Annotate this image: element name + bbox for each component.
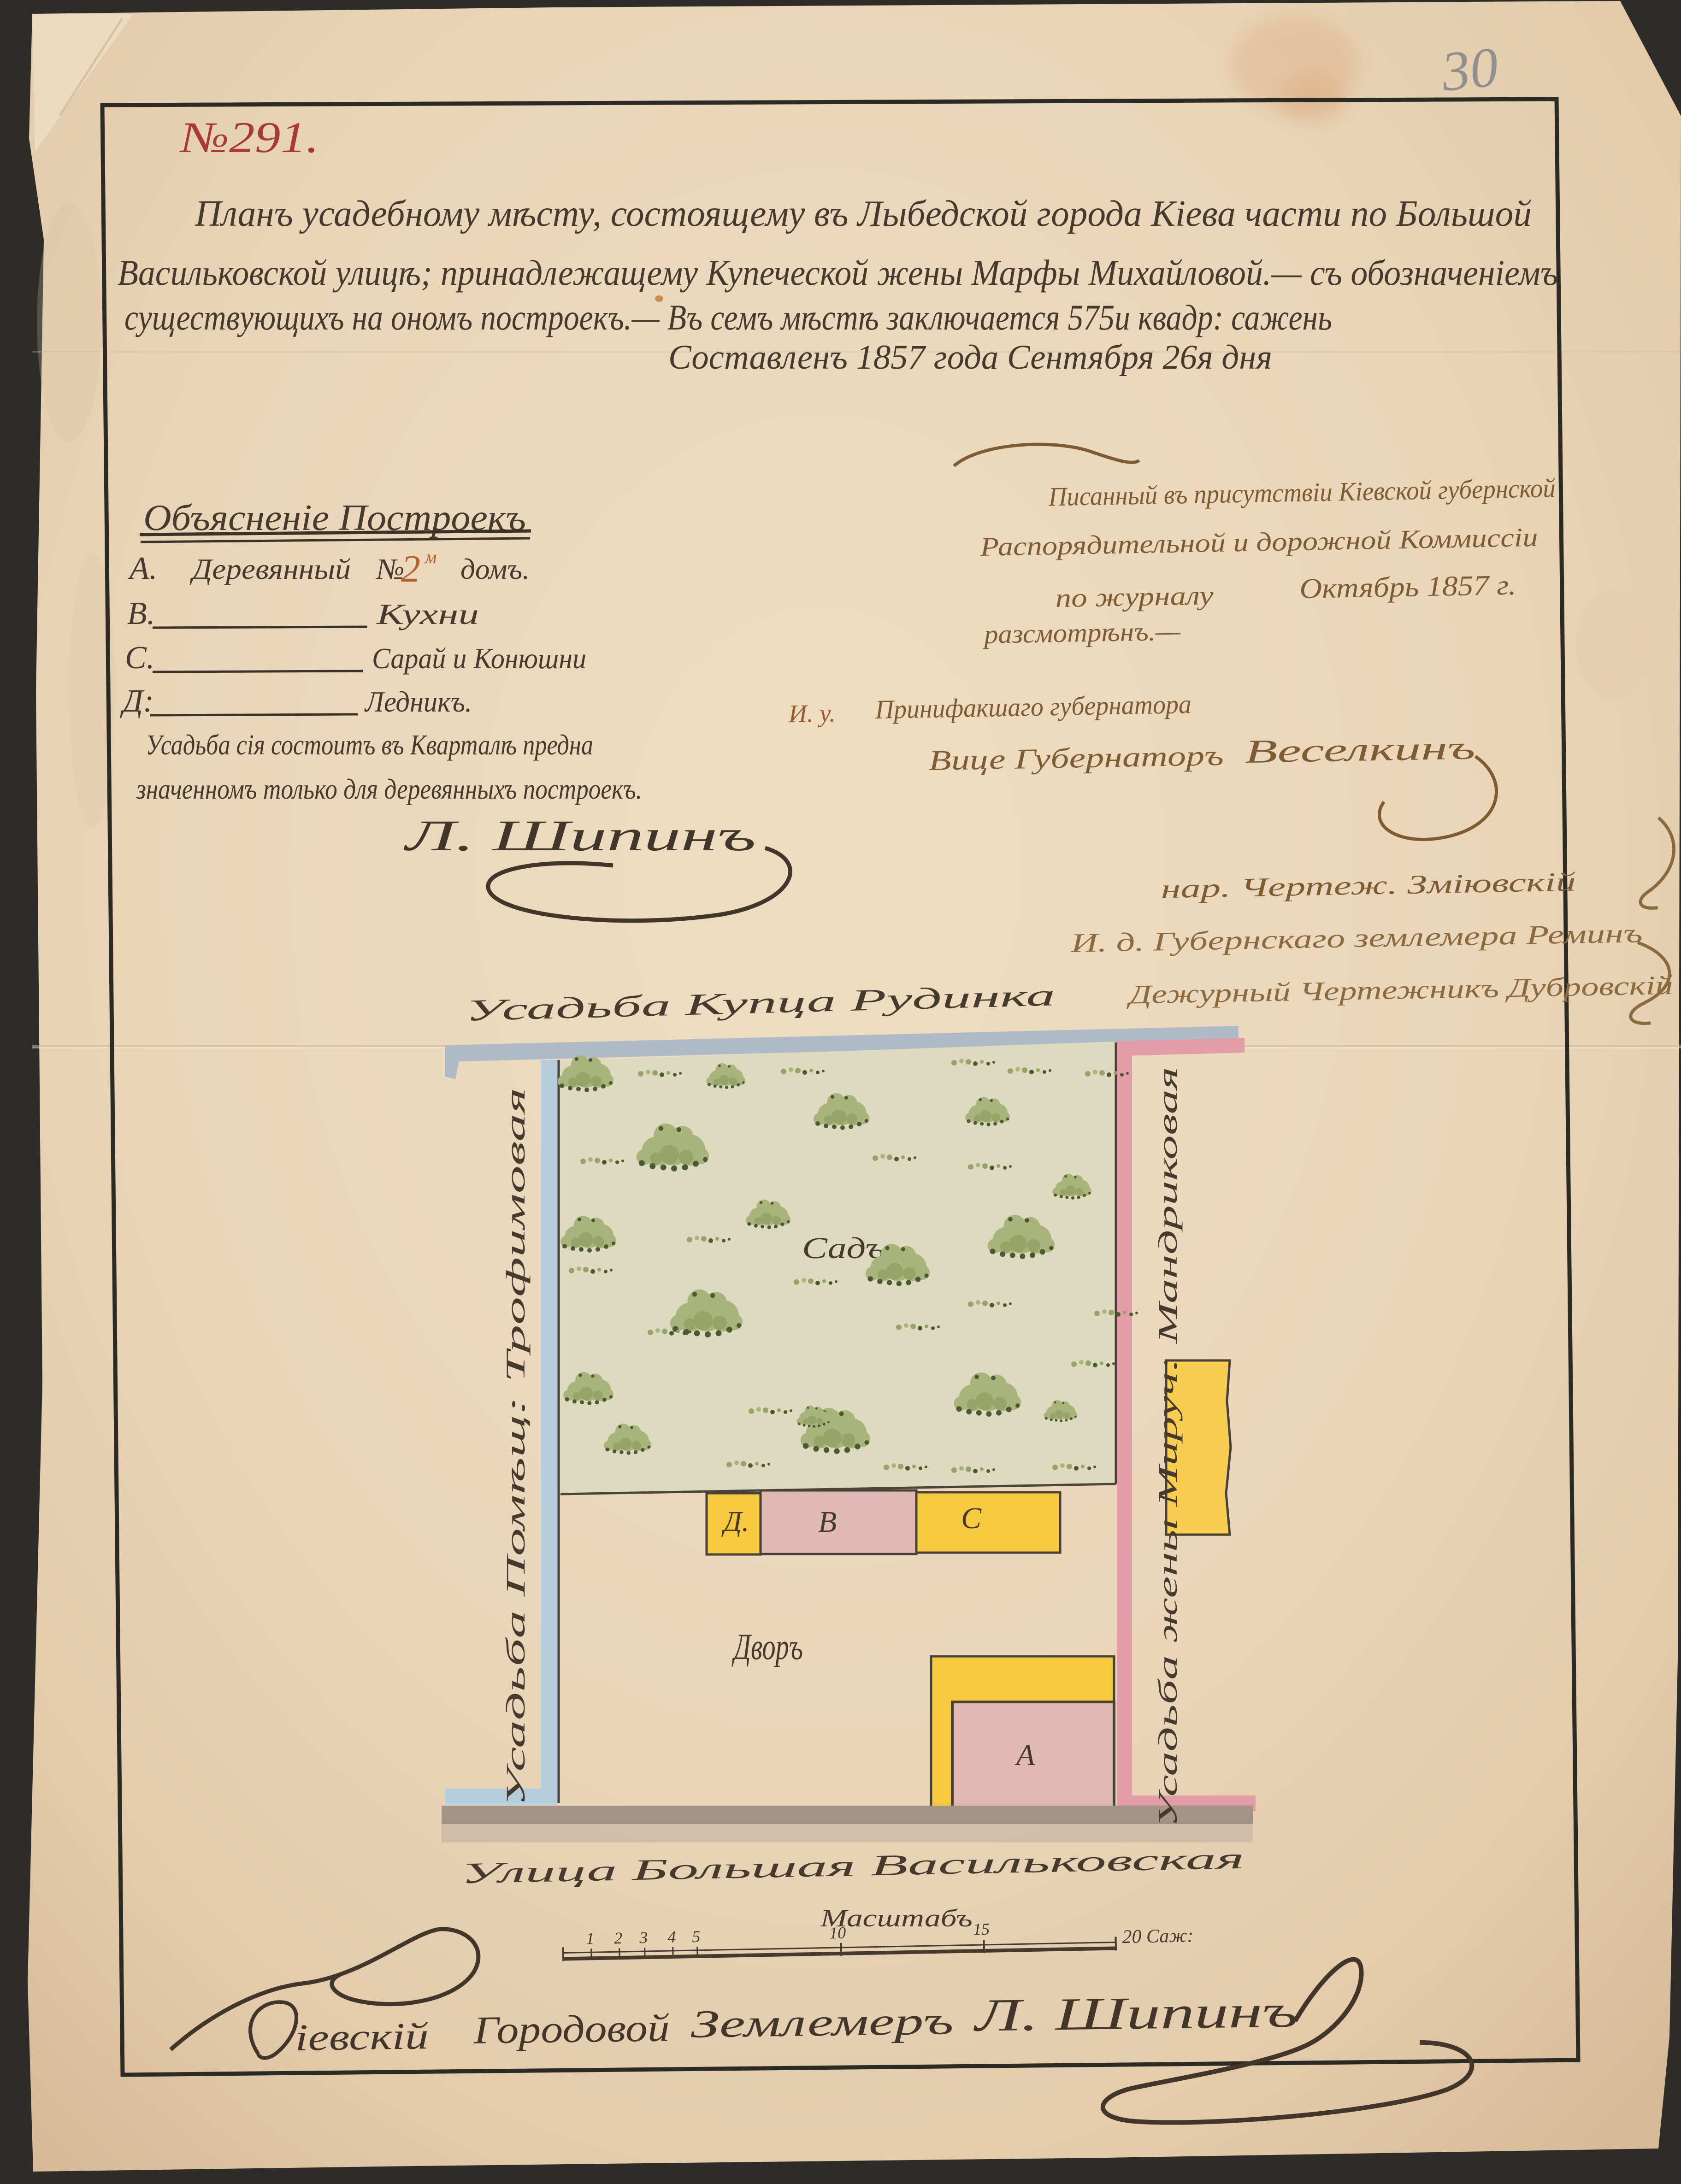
svg-text:Кухни: Кухни	[376, 598, 479, 630]
svg-text:В.: В.	[127, 596, 155, 631]
svg-text:Принифакшаго губернатора: Принифакшаго губернатора	[874, 689, 1191, 724]
svg-text:Веселкинъ: Веселкинъ	[1245, 729, 1475, 770]
svg-text:№: №	[376, 553, 404, 585]
svg-text:3: 3	[639, 1928, 648, 1947]
svg-text:Дворъ: Дворъ	[731, 1627, 803, 1667]
svg-text:Садъ: Садъ	[802, 1231, 885, 1265]
svg-text:В: В	[818, 1505, 837, 1539]
svg-text:Ледникъ.: Ледникъ.	[364, 685, 472, 718]
svg-text:Усадьба Помѣщ: Трофимовая: Усадьба Помѣщ: Трофимовая	[501, 1088, 531, 1807]
svg-text:20 Саж:: 20 Саж:	[1122, 1925, 1194, 1948]
svg-text:іевскій: іевскій	[295, 2015, 429, 2059]
svg-text:10: 10	[829, 1924, 846, 1943]
svg-text:2: 2	[401, 547, 420, 590]
svg-text:Л. Шипинъ: Л. Шипинъ	[973, 1985, 1298, 2041]
svg-text:разсмотрѣнъ.—: разсмотрѣнъ.—	[982, 616, 1181, 649]
svg-text:4: 4	[667, 1928, 676, 1946]
svg-text:1: 1	[586, 1929, 595, 1948]
svg-text:Сарай и Конюшни: Сарай и Конюшни	[372, 642, 586, 675]
svg-text:А: А	[1014, 1738, 1035, 1772]
svg-text:Вице Губернаторъ: Вице Губернаторъ	[928, 740, 1224, 777]
svg-text:Васильковской улицѣ; принадлеж: Васильковской улицѣ; принадлежащему Купе…	[118, 253, 1558, 293]
svg-text:Д:: Д:	[120, 683, 154, 719]
svg-text:Усадьба жены Мируч: Мандрикова: Усадьба жены Мируч: Мандриковая	[1153, 1067, 1183, 1827]
svg-text:2: 2	[614, 1929, 623, 1947]
svg-text:А.: А.	[128, 551, 157, 586]
svg-text:Деревянный: Деревянный	[190, 553, 351, 585]
svg-text:Усадьба сія состоитъ въ Кварта: Усадьба сія состоитъ въ Кварталѣ предна	[146, 730, 593, 761]
svg-text:№291.: №291.	[179, 113, 319, 162]
svg-text:Землемеръ: Землемеръ	[690, 1999, 954, 2046]
svg-text:С: С	[961, 1501, 982, 1535]
svg-text:значенномъ только для деревянн: значенномъ только для деревянныхъ постро…	[136, 774, 642, 805]
svg-text:30: 30	[1438, 35, 1501, 103]
svg-text:домъ.: домъ.	[460, 553, 530, 585]
svg-text:Д.: Д.	[721, 1506, 749, 1537]
svg-text:существующихъ на ономъ построе: существующихъ на ономъ построекъ.— Въ се…	[124, 297, 1332, 337]
svg-text:м: м	[424, 547, 437, 567]
svg-text:С.: С.	[125, 640, 154, 676]
svg-text:Городовой: Городовой	[473, 2006, 670, 2052]
svg-text:И. у.: И. у.	[788, 699, 836, 728]
svg-text:по журналу: по журналу	[1055, 580, 1214, 613]
svg-text:Л. Шипинъ: Л. Шипинъ	[403, 811, 756, 860]
svg-text:15: 15	[973, 1920, 990, 1939]
svg-text:Планъ усадебному мѣсту, состоя: Планъ усадебному мѣсту, состоящему въ Лы…	[195, 194, 1532, 234]
svg-text:Составленъ 1857 года Сентября: Составленъ 1857 года Сентября 26я дня	[668, 338, 1272, 377]
svg-text:Октябрь 1857 г.: Октябрь 1857 г.	[1299, 570, 1516, 605]
svg-text:5: 5	[692, 1927, 701, 1946]
